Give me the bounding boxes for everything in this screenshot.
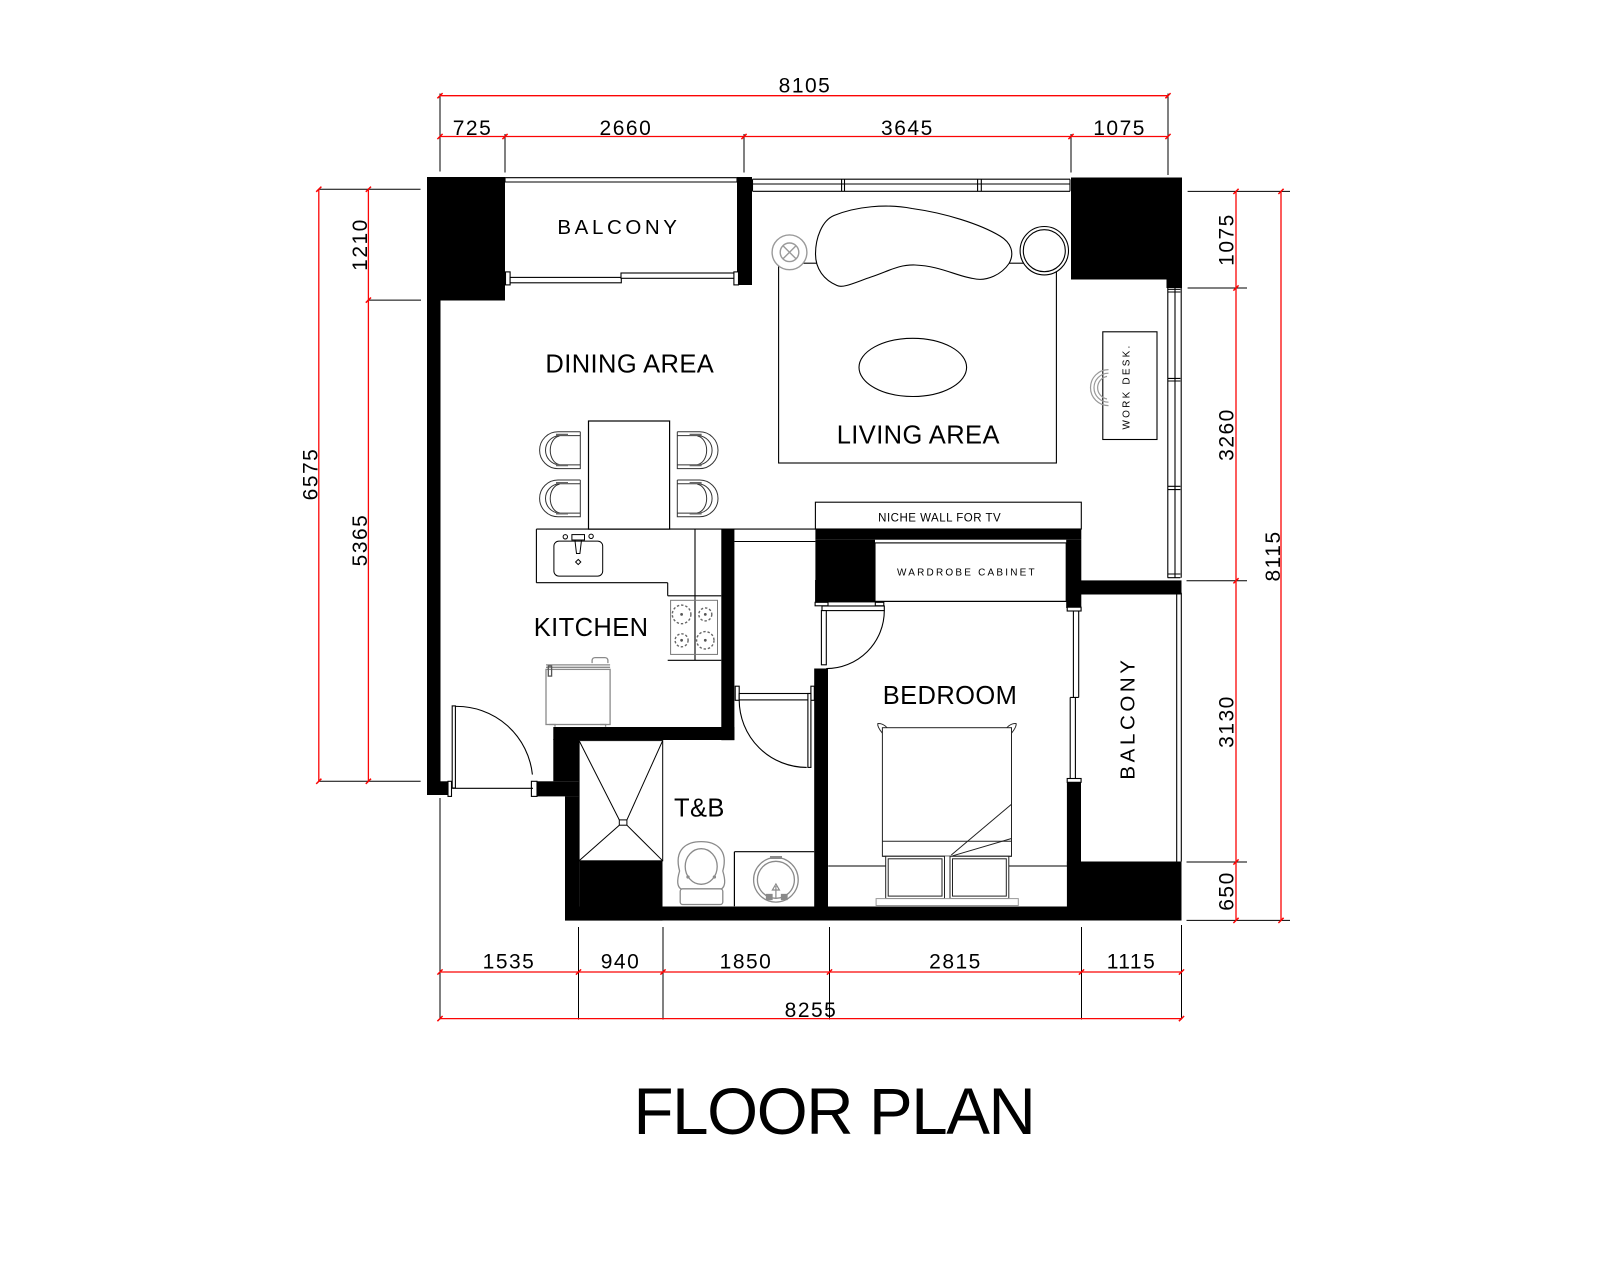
svg-text:8105: 8105 [779,75,832,98]
svg-text:LIVING AREA: LIVING AREA [837,422,1000,450]
svg-text:FLOOR PLAN: FLOOR PLAN [634,1075,1035,1148]
svg-text:BEDROOM: BEDROOM [883,682,1018,710]
svg-text:940: 940 [601,951,641,974]
svg-text:DINING AREA: DINING AREA [545,351,714,379]
svg-text:KITCHEN: KITCHEN [534,614,649,642]
svg-text:1850: 1850 [720,951,773,974]
svg-text:8255: 8255 [785,999,838,1022]
svg-text:1535: 1535 [483,951,536,974]
svg-text:1075: 1075 [1093,117,1146,140]
svg-text:3260: 3260 [1216,408,1239,461]
svg-text:NICHE WALL FOR TV: NICHE WALL FOR TV [878,513,1001,525]
svg-text:5365: 5365 [349,514,372,567]
svg-text:725: 725 [453,117,493,140]
svg-text:1075: 1075 [1216,213,1239,266]
svg-text:3130: 3130 [1216,695,1239,748]
svg-text:6575: 6575 [300,448,323,501]
svg-text:BALCONY: BALCONY [1117,656,1140,779]
svg-text:1210: 1210 [349,218,372,271]
svg-text:2815: 2815 [929,951,982,974]
svg-text:WORK DESK.: WORK DESK. [1122,344,1133,430]
svg-text:1115: 1115 [1107,951,1157,974]
svg-text:WARDROBE CABINET: WARDROBE CABINET [897,568,1037,579]
svg-text:T&B: T&B [674,795,725,823]
svg-text:2660: 2660 [600,117,653,140]
svg-text:3645: 3645 [881,117,934,140]
svg-text:650: 650 [1216,871,1239,911]
svg-text:BALCONY: BALCONY [557,216,680,239]
svg-text:8115: 8115 [1262,530,1285,581]
